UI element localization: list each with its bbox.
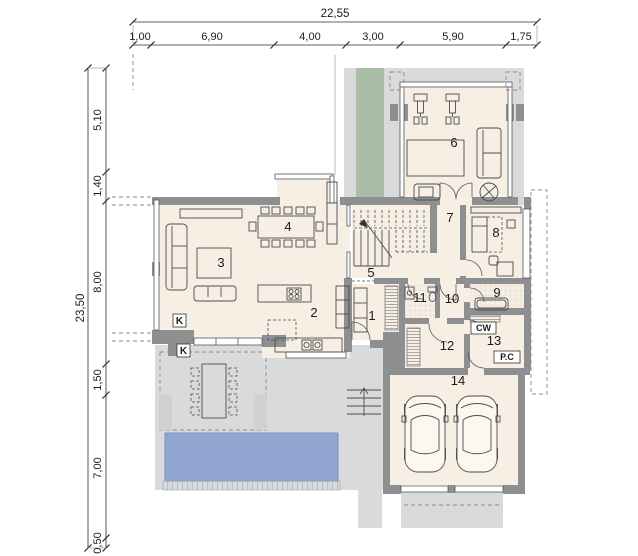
pergola-pillar xyxy=(254,394,267,430)
window-band xyxy=(330,176,334,203)
floor-plan-drawing: 22,55 1,00 6,90 4,00 3,00 5,90 1,75 23,5… xyxy=(0,0,638,556)
door-gap xyxy=(440,278,456,284)
room-label-14: 14 xyxy=(451,373,465,388)
window-band xyxy=(523,209,530,278)
top-dimension-chain: 22,55 1,00 6,90 4,00 3,00 5,90 1,75 xyxy=(129,8,540,49)
room-label-8: 8 xyxy=(492,225,499,240)
garage-wall xyxy=(518,368,525,485)
partition-glass xyxy=(347,252,350,278)
chimney-label: K xyxy=(176,316,184,327)
wardrobe xyxy=(385,286,398,330)
dim-seg: 1,50 xyxy=(92,369,104,390)
garage-door xyxy=(455,486,503,492)
wall xyxy=(460,205,466,258)
door-gap xyxy=(464,320,470,334)
room-label-7: 7 xyxy=(446,210,453,225)
window-band xyxy=(275,174,333,179)
wall-pier xyxy=(390,104,398,121)
garage-wall xyxy=(503,485,525,494)
room-label-4: 4 xyxy=(284,219,291,234)
room-label-6: 6 xyxy=(450,135,457,150)
door-gap xyxy=(408,278,424,284)
floor-plan-page: 22,55 1,00 6,90 4,00 3,00 5,90 1,75 23,5… xyxy=(0,0,638,556)
terrace-glass-door xyxy=(194,338,262,345)
dim-seg: 1,40 xyxy=(92,175,104,196)
hot-water-label: CW xyxy=(476,323,491,333)
swimming-pool xyxy=(165,433,338,481)
dim-seg: 1,75 xyxy=(510,31,531,43)
dim-seg: 1,00 xyxy=(129,31,150,43)
car xyxy=(402,396,448,472)
room-label-10: 10 xyxy=(445,291,459,306)
dim-seg: 6,90 xyxy=(201,31,222,43)
room-label-5: 5 xyxy=(367,265,374,280)
dim-seg: 5,90 xyxy=(442,31,463,43)
side-walk xyxy=(358,490,382,528)
dim-seg: 7,00 xyxy=(92,457,104,478)
wall xyxy=(456,278,530,284)
wall xyxy=(152,197,280,205)
green-strip xyxy=(356,68,384,197)
door-gap xyxy=(429,318,447,324)
door-gap xyxy=(464,288,470,302)
window-band xyxy=(400,82,512,87)
dim-seg: 4,00 xyxy=(299,31,320,43)
pool-edge xyxy=(163,481,340,490)
wall xyxy=(374,278,440,284)
left-dimension-chain: 23,50 5,10 1,40 8,00 1,50 7,00 0,50 xyxy=(75,65,110,554)
dim-total-width: 22,55 xyxy=(321,8,350,20)
window-band xyxy=(154,200,159,330)
door-gap xyxy=(468,368,484,375)
dim-seg: 0,50 xyxy=(92,532,104,553)
heat-pump-label: P.C xyxy=(500,352,514,362)
window-band xyxy=(508,87,512,197)
overhang-outline xyxy=(531,190,547,394)
driveway xyxy=(401,492,503,528)
wall xyxy=(340,197,440,205)
room-8-floor xyxy=(466,205,523,278)
wall xyxy=(262,335,286,347)
wall-chimney xyxy=(152,330,194,344)
room-label-2: 2 xyxy=(310,305,317,320)
room-label-1: 1 xyxy=(368,308,375,323)
dim-seg: 5,10 xyxy=(92,109,104,130)
room-label-9: 9 xyxy=(493,285,500,300)
garage-door xyxy=(401,486,448,492)
wall xyxy=(435,284,440,318)
room-label-11: 11 xyxy=(413,290,427,305)
dim-seg: 8,00 xyxy=(92,271,104,292)
garage-wall xyxy=(383,375,390,485)
door-gap xyxy=(460,260,466,276)
window-band xyxy=(400,87,404,197)
wall xyxy=(344,340,352,348)
wall xyxy=(524,278,531,370)
radiator-shelf xyxy=(470,315,500,322)
room-label-13: 13 xyxy=(487,333,501,348)
wall xyxy=(524,197,531,209)
chimney-label: K xyxy=(180,346,188,357)
dim-seg: 3,00 xyxy=(362,31,383,43)
wall xyxy=(470,308,530,315)
kitchen-window xyxy=(286,352,346,358)
wall xyxy=(430,205,437,253)
dining-nook-floor xyxy=(277,176,330,202)
laundry-column xyxy=(407,328,420,366)
car xyxy=(454,396,500,472)
room-label-12: 12 xyxy=(440,338,454,353)
wall-pier xyxy=(516,104,524,121)
room-label-3: 3 xyxy=(217,255,224,270)
pergola-pillar xyxy=(159,394,172,430)
wall xyxy=(370,340,383,348)
dim-total-height: 23,50 xyxy=(75,294,87,323)
garage-pier xyxy=(448,485,455,493)
garage-wall xyxy=(383,485,401,494)
wall xyxy=(383,332,400,368)
partition-glass xyxy=(347,205,350,226)
